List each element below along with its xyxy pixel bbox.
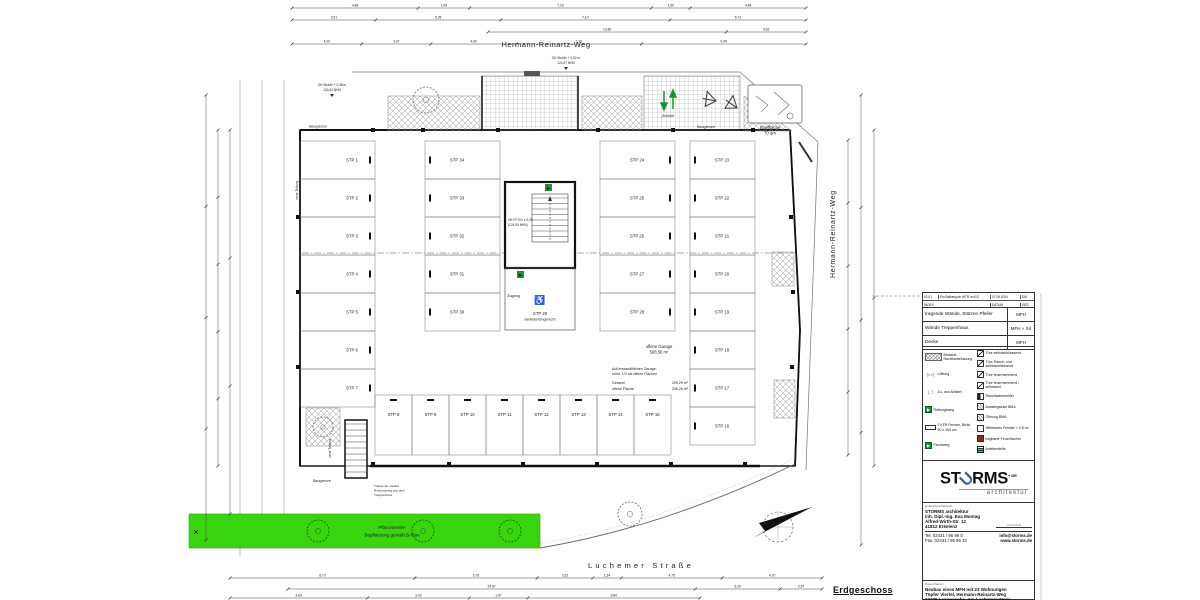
logo-superscript: + DE (1008, 473, 1017, 478)
wheel-stop (369, 347, 371, 354)
open-area-label: offene Fläche (612, 387, 634, 391)
wheel-stop (669, 157, 671, 164)
street-label-right: Hermann-Reinartz-Weg (830, 190, 837, 278)
legend-item-label: Fluchtweg (934, 443, 950, 447)
entry-walkway (482, 76, 578, 130)
wheel-stop (369, 233, 371, 240)
legend-item: Türe Rauch- und selbstschliessend (977, 360, 1033, 369)
dimension-value: 1,97 (495, 594, 502, 598)
dimension-value: 5,71 (735, 16, 742, 20)
stall-label: STP 21 (715, 234, 730, 239)
bike-rack (799, 142, 812, 162)
wheel-stop (369, 385, 371, 392)
street-level-label: OK Straße + 0,52 m (552, 56, 581, 60)
legend-item-label: Zu- und Abfahrt (938, 390, 962, 394)
dimension-value: 4,48 (745, 4, 752, 8)
material-value: MFH + S4 (1007, 322, 1034, 335)
dimension-value: 7,10 (582, 16, 589, 20)
wheel-stop (669, 195, 671, 202)
project-heading: Bauvorhaben: (925, 582, 1032, 586)
legend-item-label: Bestand Nachbarbebauung (944, 353, 975, 361)
column (671, 128, 675, 132)
handicap-stall-sublabel: behindertengerecht (525, 318, 556, 322)
stair-note: Treppenhaus (374, 493, 393, 497)
wheel-stop (694, 423, 696, 430)
north-arrow (753, 507, 812, 542)
street-level-label: 124,63 NHN (323, 88, 341, 92)
contact-block: Tel. 02431 / 96 96 0info@storms.de Fax. … (925, 531, 1032, 543)
legend-item: ▶Rettungsweg (925, 402, 974, 418)
legend-item: ↓↑Zu- und Abfahrt (925, 384, 974, 400)
hatch-door-icon (977, 414, 984, 421)
stall-label: STP 7 (346, 386, 358, 391)
column (296, 290, 300, 294)
legend-item: Öffnung BMA (977, 413, 1033, 422)
planting-strip-label: Bepflanzung gemäß B-Plan (364, 533, 420, 538)
legend-item: ▶Fluchtweg (925, 437, 974, 453)
stall-label: STP 31 (450, 272, 465, 277)
wheel-stop (669, 271, 671, 278)
driveway (644, 76, 740, 130)
wall-note: Außenwandflächen Garage: (612, 367, 657, 371)
exit-icon: ▶ (925, 406, 932, 413)
material-row: tragende Wände, Stützen PfeilerMFH (923, 308, 1034, 322)
wheel-stop (429, 233, 431, 240)
stall-label: STP 32 (450, 234, 465, 239)
legend-item-label: Öffnung BMA (986, 415, 1007, 419)
title-block: 02.01 Ein Balkenjoch WTR im EG 07.06.202… (922, 292, 1035, 600)
legend-left-column: Bestand Nachbarbebauung▷◁Lüftung↓↑Zu- un… (923, 347, 975, 460)
dimension-value: 4,90 (470, 40, 477, 44)
stair-note: Treppe als zweiter (374, 484, 399, 488)
legend-item: Türe feuerhemmend / selbstschl. (977, 381, 1033, 390)
entry-door-mark (524, 71, 540, 76)
wall-note: mind. 1/3 als offene Flächen (612, 372, 657, 376)
hatch-band-icon (925, 353, 942, 361)
street-edge-curve (540, 464, 795, 548)
wheel-stop (649, 399, 656, 401)
material-label: Decke (923, 340, 1007, 345)
stall-label: STP 3 (346, 234, 358, 239)
flucht-icon: ▶ (925, 442, 932, 449)
legend-item-label: tragbarer Feuerlöscher (986, 437, 1022, 441)
wheel-stop (429, 157, 431, 164)
dimension-value: 5,80 (611, 594, 618, 598)
dimension-value: 9,45 (720, 40, 727, 44)
dimension-value: 3,97 (393, 40, 400, 44)
column (296, 365, 300, 369)
stall-label: STP 26 (630, 234, 645, 239)
planting-area (306, 408, 340, 446)
legend-item-label: Türe feuerhemmend (986, 373, 1018, 377)
revision-date: 07.06.2024 (991, 295, 1021, 299)
exit-icon-glyph: ▶ (547, 186, 551, 191)
legend-item: Türe feuerhemmend (977, 370, 1033, 379)
wheel-stop (669, 233, 671, 240)
revision-by: DM (1021, 295, 1034, 299)
dimension-value: 1,50 (668, 4, 675, 8)
dimension-value: 2,62 (562, 574, 569, 578)
door-icon (977, 360, 984, 367)
revision-col-index: INDEX (923, 303, 991, 307)
legend-item-label: Rauchwarnmelder (986, 394, 1014, 398)
column (743, 462, 747, 466)
drawing-sheet: Spielfläche 70 qm Zufahrt ▶ ▶ OK FF EG ±… (0, 0, 1200, 600)
legend-item-label: Ausstiegsluke BMA (986, 405, 1016, 409)
column (791, 290, 795, 294)
website: www.storms.de (1000, 538, 1032, 543)
stall-label: STP 5 (346, 310, 358, 315)
planting-area (582, 96, 642, 130)
level-marker (564, 67, 568, 70)
dimension-value: 3,43 (415, 594, 422, 598)
legend-item: Bestand Nachbarbebauung (925, 349, 974, 365)
fax: Fax. 02431 / 96 96 33 (925, 538, 967, 543)
dimension-value: 1,34 (604, 574, 611, 578)
project-description: Neubau eines MFH mit 23 WohnungenTöpfer … (925, 587, 1032, 600)
legend-item-label: Anleiterstelle (986, 447, 1006, 451)
smoke-icon (977, 393, 984, 400)
tree (618, 502, 642, 526)
stall-label: STP 12 (534, 412, 549, 417)
stall-label: STP 34 (450, 158, 465, 163)
stall-label: STP 8 (388, 412, 400, 417)
total-label: Gesamt (612, 381, 625, 385)
wheel-stop (694, 157, 696, 164)
wheel-stop (369, 157, 371, 164)
window-icon (925, 425, 936, 430)
column (789, 215, 793, 219)
stall-label: STP 23 (715, 158, 730, 163)
wheel-stop (369, 195, 371, 202)
legend-right-column: Türe selbstschliessendTüre Rauch- und se… (975, 347, 1034, 460)
dimension-value: 2,57 (798, 585, 805, 589)
stall-label: STP 2 (346, 196, 358, 201)
playground-outline (748, 85, 802, 123)
stall-label: STP 28 (630, 310, 645, 315)
wheel-stop (669, 309, 671, 316)
wheelchair-icon: ♿ (534, 294, 545, 305)
stall-label: STP 19 (715, 310, 730, 315)
zufahrt-label: Zufahrt (661, 114, 675, 118)
designer-heading: Entwurfsverfasserin: (925, 504, 1032, 508)
revision-table: 02.01 Ein Balkenjoch WTR im EG 07.06.202… (923, 293, 1034, 307)
dimension-value: 4,70 (769, 574, 776, 578)
legend-item-label: Türe Rauch- und selbstschliessend (986, 360, 1034, 368)
stall-label: STP 4 (346, 272, 358, 277)
legend-item-label: öffenbares Fenster > 0,5 m² (986, 426, 1029, 430)
material-row: Wände TreppenhausMFH + S4 (923, 322, 1034, 336)
wheel-stop (369, 309, 371, 316)
door-icon (977, 371, 984, 378)
column (669, 462, 673, 466)
stall-label: STP 20 (715, 272, 730, 277)
revision-row: 02.01 Ein Balkenjoch WTR im EG 07.06.202… (923, 293, 1034, 301)
stall-label: STP 11 (498, 412, 513, 417)
dimension-value: 4,63 (296, 594, 303, 598)
fire-icon (977, 435, 984, 442)
baugrenze-label: Baugrenze (697, 125, 715, 129)
legend-item: Ausstiegsluke BMA (977, 402, 1033, 411)
level-label: (124,50 NHN) (508, 223, 528, 227)
wheel-stop (538, 399, 545, 401)
column (496, 128, 500, 132)
revision-col-by: GEZ (1021, 303, 1034, 307)
column (371, 462, 375, 466)
dimension-value: 13,80 (603, 28, 611, 32)
stall-label: STP 30 (450, 310, 465, 315)
street-label-bottom: Luchemer Straße (588, 561, 694, 570)
dimension-value: 4,88 (352, 4, 359, 8)
planting-area (772, 252, 794, 286)
total-value: 295,29 m² (672, 381, 689, 385)
dimension-value: 5,20 (734, 585, 741, 589)
materials-table: tragende Wände, Stützen PfeilerMFHWände … (923, 307, 1034, 346)
storms-logo: STURMS+ DE (923, 467, 1034, 488)
stair-note: Rettungsweg aus dem (374, 489, 405, 493)
door-icon (977, 350, 984, 357)
stall-label: STP 27 (630, 272, 645, 277)
dimension-value: 8,70 (319, 574, 326, 578)
legend-item-label: 2 KFB Fenster, Brüst. 90 x 163 cm (938, 423, 975, 431)
wheel-stop (612, 399, 619, 401)
material-label: Wände Treppenhaus (923, 326, 1007, 331)
planting-area (388, 96, 480, 130)
wheel-stop (694, 233, 696, 240)
stall-label: STP 24 (630, 158, 645, 163)
hatch-door-icon (977, 403, 984, 410)
dimension-value: 5,25 (435, 16, 442, 20)
green-planting-strip (189, 514, 540, 548)
wheel-stop (694, 309, 696, 316)
floor-title: Erdgeschoss (833, 585, 893, 595)
stall-label: STP 17 (715, 386, 730, 391)
legend-item: tragbarer Feuerlöscher (977, 435, 1033, 444)
stall-label: STP 15 (645, 412, 660, 417)
wheel-stop (694, 271, 696, 278)
legend: Bestand Nachbarbebauung▷◁Lüftung↓↑Zu- un… (923, 346, 1034, 460)
dimension-value: 7,19 (576, 40, 583, 44)
legend-item-label: Türe feuerhemmend / selbstschl. (986, 381, 1034, 389)
stall-label: STP 1 (346, 158, 358, 163)
wheel-stop (694, 347, 696, 354)
column (751, 128, 755, 132)
stall-label: STP 9 (425, 412, 437, 417)
material-label: tragende Wände, Stützen Pfeiler (923, 312, 1007, 317)
legend-item-label: Rettungsweg (934, 408, 954, 412)
legend-item: 2 KFB Fenster, Brüst. 90 x 163 cm (925, 420, 974, 436)
wheel-stop (501, 399, 508, 401)
wheel-stop (429, 195, 431, 202)
zugang-label: Zugang (507, 294, 520, 298)
street-edge-hatch (540, 459, 793, 544)
level-label: OK FF EG ± 0,00 (508, 218, 533, 222)
column (596, 128, 600, 132)
firm-logo-block: STURMS+ DE architektur (923, 460, 1034, 502)
dimension-value: 4,62 (763, 28, 770, 32)
column (447, 462, 451, 466)
planting-area (774, 380, 795, 418)
level-marker (330, 94, 334, 97)
wheel-stop (369, 271, 371, 278)
project-block: Bauvorhaben: Neubau eines MFH mit 23 Woh… (923, 580, 1034, 600)
dimension-value: 5,76 (473, 574, 480, 578)
playground-area-label: 70 qm (764, 131, 776, 136)
legend-item-label: Lüftung (938, 372, 950, 376)
damper-icon: ▷◁ (925, 371, 936, 378)
column (790, 365, 794, 369)
baugrenze-label: Baugrenze (313, 479, 331, 483)
dimension-value: 4,00 (324, 40, 331, 44)
dimension-value: 4,75 (669, 574, 676, 578)
legend-item: Türe selbstschliessend (977, 349, 1033, 358)
signature-line: Unterschrift (996, 516, 1032, 528)
tree-trunk (627, 511, 632, 516)
stall-label: STP 25 (630, 196, 645, 201)
teilung-label: neue Teilung (295, 181, 299, 200)
stall-label: STP 18 (715, 348, 730, 353)
stall-label: STP 16 (715, 424, 730, 429)
garage-title: offene Garage (646, 344, 673, 349)
revision-col-date: DATUM (991, 303, 1021, 307)
open-area-value: 208,26 m² (672, 387, 689, 391)
wheel-stop (694, 195, 696, 202)
garage-area-value: 568,56 m² (650, 350, 669, 355)
material-value: MFH (1007, 308, 1034, 321)
wheel-stop (464, 399, 471, 401)
legend-item: ▷◁Lüftung (925, 367, 974, 383)
site-property-lines (240, 80, 284, 556)
legend-item: Rauchwarnmelder (977, 392, 1033, 401)
column (421, 128, 425, 132)
dimension-value: 1,99 (441, 4, 448, 8)
ladder-icon (977, 446, 984, 453)
column (521, 462, 525, 466)
column (371, 128, 375, 132)
teilung-label: neue Teilung (328, 439, 332, 458)
planting-strip-label: Pflanzstreifen (378, 525, 406, 530)
legend-item: öffenbares Fenster > 0,5 m² (977, 424, 1033, 433)
column (296, 215, 300, 219)
column (595, 462, 599, 466)
revision-text: Ein Balkenjoch WTR im EG (939, 295, 991, 299)
window2-icon (977, 425, 984, 432)
stall-label: STP 6 (346, 348, 358, 353)
street-level-label: 124,57 NHN (557, 61, 575, 65)
wheel-stop (429, 309, 431, 316)
wheel-stop (429, 271, 431, 278)
baugrenze-label: Baugrenze (309, 125, 327, 129)
stall-label: STP 10 (460, 412, 475, 417)
wheel-stop (694, 385, 696, 392)
door-icon (977, 382, 984, 389)
exterior-stair (345, 420, 367, 478)
playground-label: Spielfläche (760, 125, 781, 130)
wheel-stop (575, 399, 582, 401)
arrows-icon: ↓↑ (925, 389, 936, 396)
stall-label: STP 22 (715, 196, 730, 201)
legend-item-label: Türe selbstschliessend (986, 351, 1022, 355)
exit-icon-glyph: ▶ (519, 273, 523, 278)
handicap-stall-label: STP 29 (533, 311, 548, 316)
stall-label: STP 33 (450, 196, 465, 201)
dimension-value: 24,97 (488, 585, 496, 589)
revision-index: 02.01 (923, 295, 939, 299)
dimension-value: 3,51 (331, 16, 338, 20)
designer-block: Entwurfsverfasserin: STORMS architekturI… (923, 502, 1034, 541)
legend-item: Anleiterstelle (977, 445, 1033, 454)
street-level-label: OK Straße + 0,38 m (318, 83, 347, 87)
stall-label: STP 13 (571, 412, 586, 417)
wheel-stop (427, 399, 434, 401)
stall-label: STP 14 (608, 412, 623, 417)
dimension-value: 7,03 (557, 4, 564, 8)
wheel-stop (390, 399, 397, 401)
